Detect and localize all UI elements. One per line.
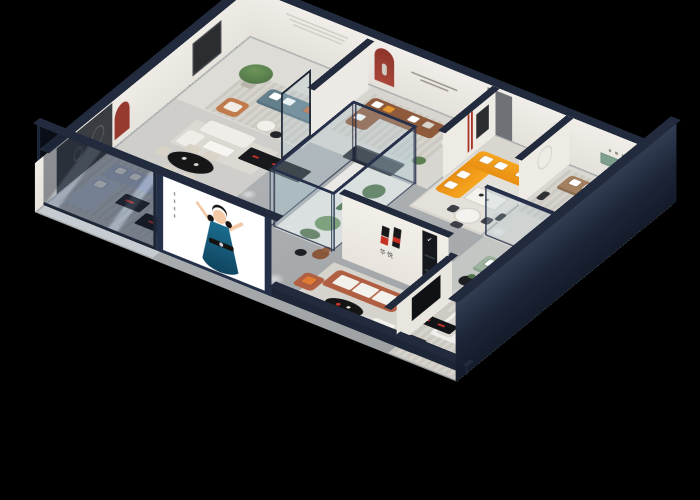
console-red-accent	[252, 155, 259, 159]
wall-slogan-line	[411, 71, 457, 91]
table-decor	[478, 193, 485, 197]
table-setting	[193, 163, 200, 167]
niche-vase	[382, 63, 387, 76]
floor-plan: 华悦 ✓	[35, 36, 672, 382]
niche-shelf-line	[425, 254, 435, 260]
sofa-pillow	[568, 179, 582, 187]
sofa-seat-cushion	[332, 275, 360, 291]
red-stripe-art	[471, 111, 473, 150]
showroom-render: 华悦 ✓	[0, 0, 700, 500]
armchair-pillow	[301, 276, 318, 286]
black-frame-art	[193, 20, 222, 76]
red-arch-niche	[375, 45, 395, 87]
dark-art-frame	[476, 104, 489, 139]
logo-bar-left-red	[380, 236, 388, 246]
table-setting	[181, 156, 188, 160]
check-icon: ✓	[426, 235, 432, 246]
red-arch-niche	[115, 97, 130, 140]
sofa-seat-cushion	[351, 283, 379, 299]
side-table-black	[292, 248, 309, 258]
red-stripe-art	[468, 114, 470, 153]
table-decor-white	[346, 306, 352, 309]
shelf-red-accent	[437, 323, 445, 327]
